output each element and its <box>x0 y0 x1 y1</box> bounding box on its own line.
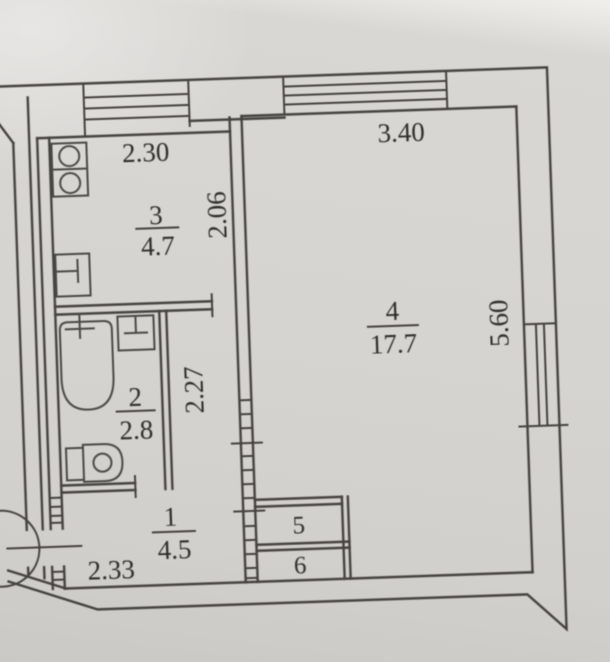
bathroom-room-number: 2 <box>128 382 143 412</box>
toilet-icon <box>66 443 123 482</box>
kitchen-fraction-bar <box>136 227 178 228</box>
bathtub-icon <box>59 313 114 411</box>
hallway-room-number: 1 <box>163 502 178 532</box>
outer-walls <box>0 67 567 648</box>
living-depth-dimension: 5.60 <box>483 299 515 347</box>
hallway-fraction-bar <box>153 531 195 532</box>
floor-plan-drawing: 2.30 3 4.7 2.06 3.40 4 17.7 5.60 2.27 2 … <box>0 0 610 662</box>
stove-icon <box>51 143 88 197</box>
corridor-length-dimension: 2.27 <box>178 366 210 414</box>
pier-wall <box>190 118 285 121</box>
washbasin-icon <box>117 315 154 350</box>
living-room-area: 17.7 <box>369 328 417 360</box>
kitchen-window-icon <box>83 80 190 137</box>
living-fraction-bar <box>368 325 418 327</box>
scanned-floor-plan: 2.30 3 4.7 2.06 3.40 4 17.7 5.60 2.27 2 … <box>0 0 610 662</box>
bathroom-fraction-bar <box>117 410 155 411</box>
living-room-number: 4 <box>385 296 400 326</box>
kitchen-width-dimension: 2.30 <box>122 137 170 169</box>
living-room-window-icon <box>283 71 447 115</box>
kitchen-room-number: 3 <box>149 200 164 230</box>
hallway-room-area: 4.5 <box>157 534 192 565</box>
bathroom-room-area: 2.8 <box>119 414 154 445</box>
kitchen-depth-dimension: 2.06 <box>201 191 233 239</box>
living-width-dimension: 3.40 <box>377 117 425 149</box>
closet-6-number: 6 <box>293 552 306 579</box>
kitchen-sink-icon <box>55 253 90 296</box>
hallway-width-dimension: 2.33 <box>87 554 135 586</box>
closet-5-number: 5 <box>292 512 305 539</box>
interior-walls <box>37 106 533 588</box>
kitchen-room-area: 4.7 <box>141 231 176 262</box>
